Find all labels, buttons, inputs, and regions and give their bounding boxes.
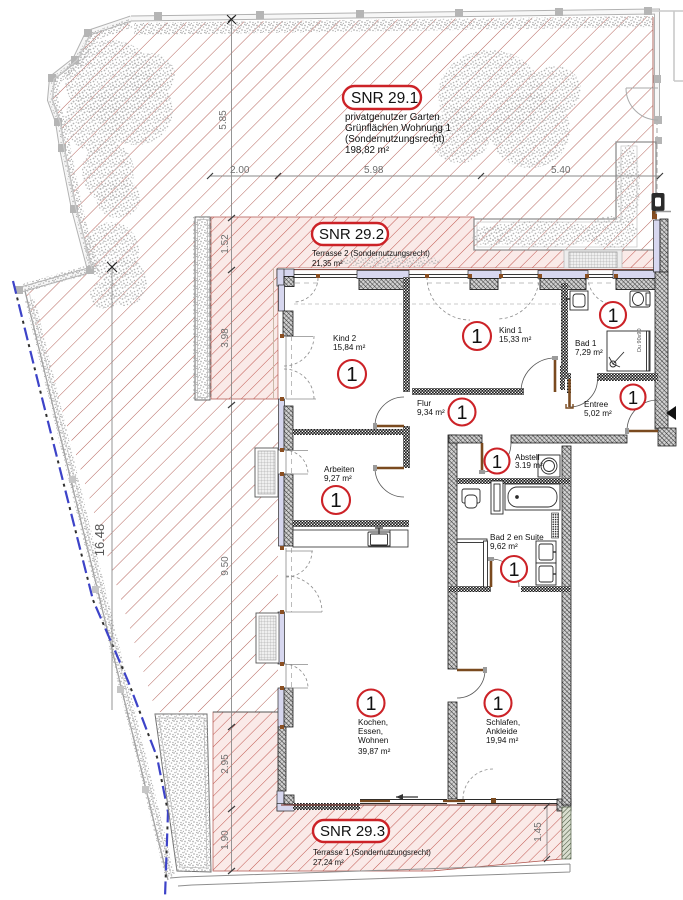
svg-text:1: 1 [492, 451, 502, 472]
svg-text:Terrasse 2 (Sondernutzungsrech: Terrasse 2 (Sondernutzungsrecht) [312, 249, 430, 258]
svg-text:15,33 m²: 15,33 m² [499, 335, 532, 344]
svg-text:5.85: 5.85 [218, 110, 229, 130]
svg-text:Arbeiten: Arbeiten [324, 465, 355, 474]
svg-text:1.45: 1.45 [533, 822, 544, 842]
svg-text:Terrasse 1 (Sondernutzungsrech: Terrasse 1 (Sondernutzungsrecht) [313, 848, 431, 857]
svg-text:Du 90x90: Du 90x90 [637, 328, 643, 352]
svg-text:1: 1 [457, 402, 468, 424]
svg-text:9,34 m²: 9,34 m² [417, 408, 445, 417]
svg-text:1: 1 [366, 693, 377, 715]
svg-text:Bad 1: Bad 1 [575, 339, 597, 348]
svg-text:Schlafen,: Schlafen, [486, 718, 520, 727]
svg-text:15,84 m²: 15,84 m² [333, 343, 366, 352]
svg-text:2.95: 2.95 [220, 754, 231, 774]
svg-text:Kind 2: Kind 2 [333, 334, 357, 343]
svg-text:3.98: 3.98 [220, 328, 231, 348]
svg-text:privatgenutzer Garten: privatgenutzer Garten [345, 112, 440, 123]
svg-text:1: 1 [493, 693, 504, 715]
svg-text:Bad 2 en Suite: Bad 2 en Suite [490, 533, 544, 542]
svg-text:9.50: 9.50 [220, 556, 231, 576]
svg-text:SNR 29.3: SNR 29.3 [320, 823, 385, 840]
svg-text:Kind 1: Kind 1 [499, 326, 523, 335]
svg-text:21,35 m²: 21,35 m² [312, 259, 343, 268]
svg-text:5.98: 5.98 [364, 165, 384, 176]
svg-text:1: 1 [330, 489, 341, 512]
svg-text:39,87 m²: 39,87 m² [358, 747, 391, 756]
svg-text:1.52: 1.52 [220, 234, 231, 254]
svg-text:Ankleide: Ankleide [486, 727, 518, 736]
svg-text:1: 1 [346, 363, 357, 386]
svg-text:1: 1 [608, 305, 619, 327]
svg-text:9,62 m²: 9,62 m² [490, 542, 518, 551]
svg-text:2.00: 2.00 [230, 165, 250, 176]
svg-text:Wohnen: Wohnen [358, 736, 389, 745]
svg-text:(Sondernutzungsrecht): (Sondernutzungsrecht) [345, 134, 445, 145]
svg-text:3.19 m²: 3.19 m² [515, 461, 543, 470]
svg-text:5,02 m²: 5,02 m² [584, 409, 612, 418]
svg-text:9,27 m²: 9,27 m² [324, 474, 352, 483]
svg-text:Flur: Flur [417, 399, 431, 408]
svg-text:1.90: 1.90 [220, 830, 231, 850]
svg-text:19,94 m²: 19,94 m² [486, 736, 519, 745]
svg-text:SNR 29.2: SNR 29.2 [319, 226, 384, 243]
svg-text:1: 1 [509, 559, 520, 581]
svg-text:Entree: Entree [584, 400, 609, 409]
svg-text:198,82 m²: 198,82 m² [345, 145, 390, 156]
svg-text:1: 1 [471, 325, 482, 348]
svg-text:7,29 m²: 7,29 m² [575, 348, 603, 357]
svg-text:SNR 29.1: SNR 29.1 [351, 90, 418, 107]
svg-text:Grünflächen Wohnung 1: Grünflächen Wohnung 1 [345, 123, 451, 134]
svg-text:Essen,: Essen, [358, 727, 383, 736]
svg-text:5.40: 5.40 [551, 165, 571, 176]
svg-text:Kochen,: Kochen, [358, 718, 388, 727]
svg-text:1: 1 [628, 387, 638, 408]
svg-text:27,24 m²: 27,24 m² [313, 858, 344, 867]
svg-text:16.48: 16.48 [92, 524, 107, 557]
